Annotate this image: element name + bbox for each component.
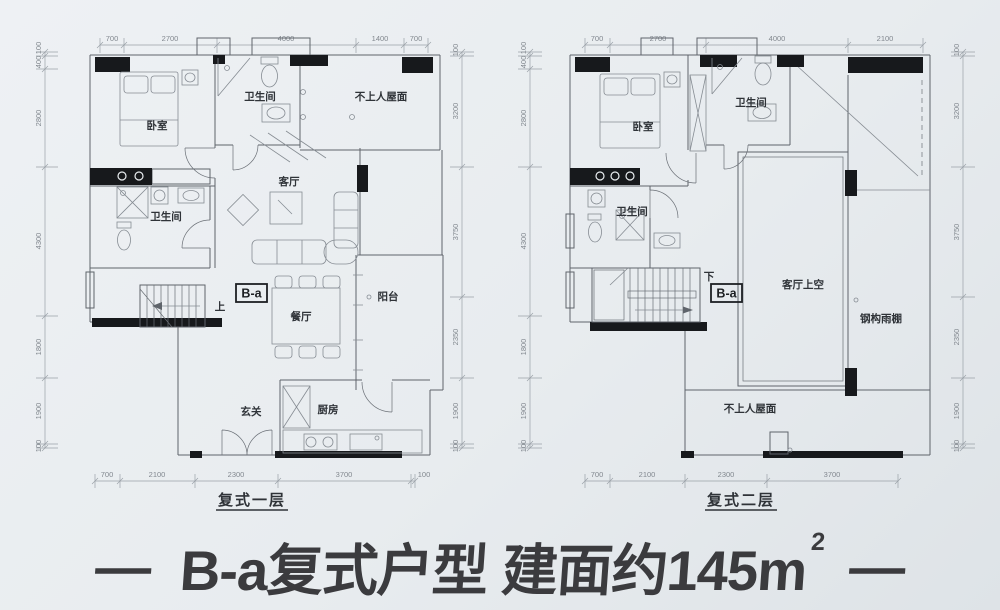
f2-dim: 100 [519,440,528,453]
f2-dim: 700 [591,470,604,479]
f1-dim: 100 [34,42,43,55]
f1-dim: 100 [451,440,460,453]
f1-dim: 1900 [451,403,460,420]
f2-dim: 100 [952,440,961,453]
f1-label-bath-top: 卫生间 [244,90,276,103]
f2-dim: 1800 [519,339,528,356]
f1-dim: 700 [410,34,423,43]
f2-section-marker: B-a [716,287,737,301]
f1-label-bedroom: 卧室 [147,119,168,132]
f2-dim: 4300 [519,233,528,250]
f2-dim: 1900 [519,403,528,420]
f2-dim: 3750 [952,224,961,241]
f2-dim: 2800 [519,110,528,127]
plan-title: — B-a复式户型 建面约145m2 — [0,522,1000,610]
f1-label-dining: 餐厅 [290,310,312,323]
f1-dim: 700 [106,34,119,43]
f1-label-bath-mid: 卫生间 [150,210,182,223]
floor2-caption-text: 复式二层 [706,491,775,509]
title-dash-right: — [847,534,907,599]
floor2-labels: 卧室 卫生间 卫生间 下 客厅上空 钢构雨棚 不上人屋面 B-a [616,96,902,415]
f2-label-down: 下 [704,271,715,283]
f1-dim: 100 [451,44,460,57]
f1-dim: 2100 [149,470,166,479]
f2-label-canopy: 钢构雨棚 [860,312,902,325]
f1-dim: 2300 [228,470,245,479]
f2-dim: 3200 [952,103,961,120]
f2-label-bath-mid: 卫生间 [616,205,648,218]
f1-dim: 3200 [451,103,460,120]
title-main-text: B-a复式户型 建面约145m [178,539,808,602]
floor2-stairs [592,268,700,322]
floor1-kitchen-fixtures [283,386,422,453]
floor1-caption: 复式一层 [216,491,288,510]
f2-dim: 700 [591,34,604,43]
f1-dim: 1800 [34,339,43,356]
floor2-bath-mid-fixtures [588,190,680,248]
floor2-doors [650,145,748,218]
f1-dim: 400 [34,56,43,69]
floorplan-page: { "colors":{"background":"#e9edf0","wall… [0,0,1000,610]
f1-dim: 2700 [162,34,179,43]
f2-dim: 1900 [952,403,961,420]
f1-dim: 3700 [336,470,353,479]
f1-dim: 1900 [34,403,43,420]
floor1-plan: 700 2700 4000 1400 700 700 2100 2300 370… [34,34,474,510]
title-text: B-a复式户型 建面约145m2 [178,526,823,607]
f1-label-kitchen: 厨房 [318,403,339,416]
f2-dim: 2100 [639,470,656,479]
f2-label-roof: 不上人屋面 [724,402,777,415]
floor2-caption: 复式二层 [705,491,777,510]
f2-dim: 3700 [824,470,841,479]
f2-dim: 4000 [769,34,786,43]
f2-dim: 100 [952,44,961,57]
f2-dim: 2100 [877,34,894,43]
floor2-bed [600,72,680,148]
f2-dim: 400 [519,56,528,69]
f2-dim: 100 [519,42,528,55]
f2-label-bedroom: 卧室 [633,120,654,133]
f1-label-balcony: 阳台 [378,290,399,303]
f1-dim: 2350 [451,329,460,346]
f2-dim: 2300 [718,470,735,479]
f2-label-bath-top: 卫生间 [735,96,767,109]
f1-dim: 100 [34,440,43,453]
f1-section-marker: B-a [241,287,262,301]
f1-label-living: 客厅 [278,175,300,188]
floor1-bed [120,70,198,146]
title-dash-left: — [93,534,153,599]
title-superscript: 2 [810,528,825,556]
f2-dim: 2350 [952,329,961,346]
floor1-bath-top-fixtures [218,57,290,122]
f1-dim: 100 [418,470,431,479]
f1-label-up: 上 [215,300,226,313]
floorplan-drawing: 700 2700 4000 1400 700 700 2100 2300 370… [0,0,1000,522]
f1-label-foyer: 玄关 [241,405,262,418]
f1-dim: 3750 [451,224,460,241]
floor1-sofa [227,192,358,264]
f2-label-living-void: 客厅上空 [781,278,824,291]
f1-dim: 2800 [34,110,43,127]
f1-label-roof: 不上人屋面 [355,90,408,103]
f1-dim: 4300 [34,233,43,250]
f1-dim: 700 [101,470,114,479]
floor2-plan: 700 2700 4000 2100 700 2100 2300 3700 10… [518,34,975,510]
f1-dim: 1400 [372,34,389,43]
floor1-caption-text: 复式一层 [217,491,286,509]
